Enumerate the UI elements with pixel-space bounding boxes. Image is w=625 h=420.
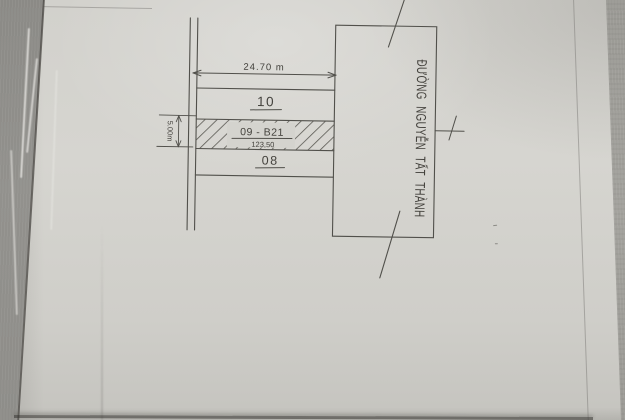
top-dimension-label: 24.70 m	[243, 62, 284, 74]
plot-09-b21-label: 09 - B21	[240, 126, 284, 139]
road-name-label: ĐƯỜNG NGUYỄN TẤT THÀNH	[412, 59, 430, 217]
sketch-linework: 24.70 m 10 09 - B21 123,50 08 ĐƯỜNG NGUY…	[155, 0, 501, 280]
side-dimension-label: 5.00m	[165, 121, 174, 142]
crease-highlight	[20, 28, 30, 178]
plot-08-label: 08	[262, 154, 279, 168]
station-tick	[435, 116, 464, 140]
paper-fold-crease	[101, 225, 103, 420]
side-dimension-line	[157, 115, 196, 147]
crease-highlight	[10, 150, 18, 315]
scanned-cadastral-sketch: 24.70 m 10 09 - B21 123,50 08 ĐƯỜNG NGUY…	[0, 0, 625, 420]
plot-09-b21-area: 123,50	[251, 140, 274, 149]
pencil-specks	[493, 225, 497, 244]
plot-10-label: 10	[257, 94, 275, 109]
plot-sketch-svg: 24.70 m 10 09 - B21 123,50 08 ĐƯỜNG NGUY…	[0, 0, 625, 420]
